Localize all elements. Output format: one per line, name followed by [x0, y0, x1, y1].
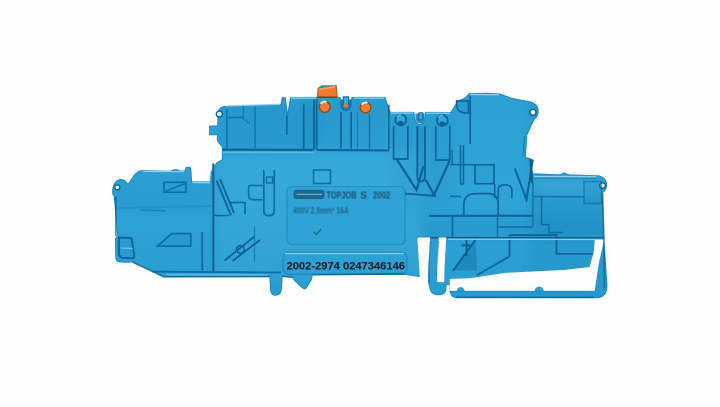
svg-text:400V 2.5mm² 16A: 400V 2.5mm² 16A: [293, 205, 349, 215]
svg-text:2002: 2002: [373, 190, 391, 201]
svg-text:S: S: [360, 190, 367, 201]
svg-text:TOPJOB: TOPJOB: [327, 190, 357, 201]
svg-text:2002-2974 0247346146: 2002-2974 0247346146: [287, 261, 406, 273]
